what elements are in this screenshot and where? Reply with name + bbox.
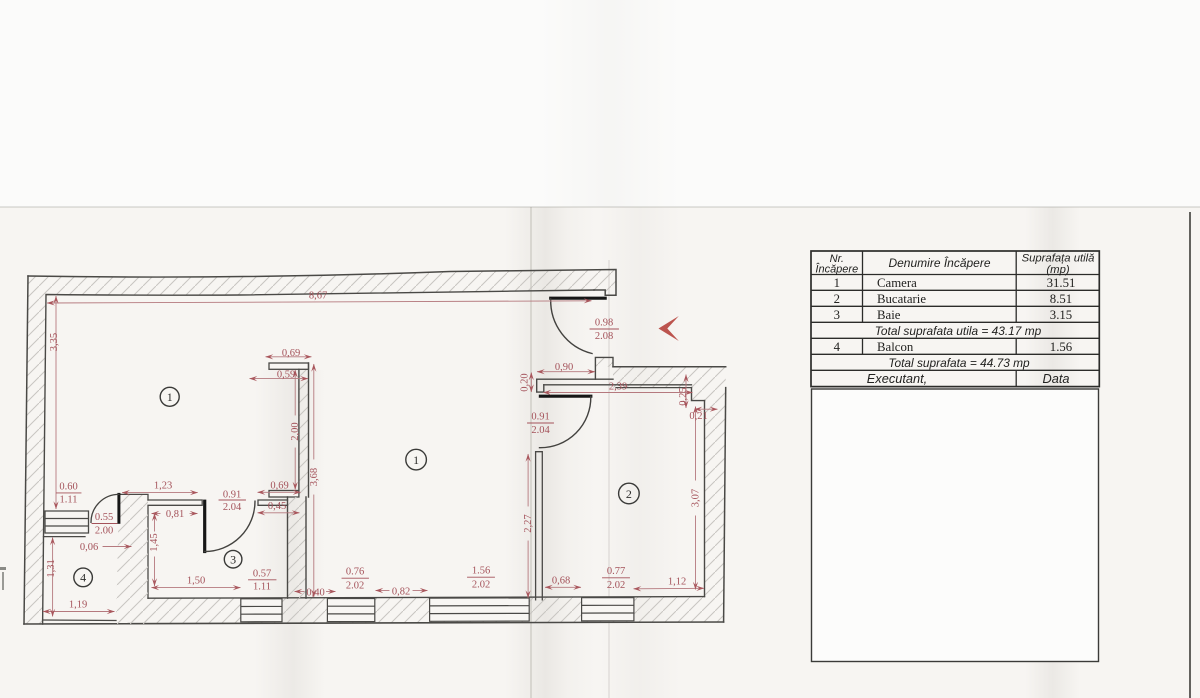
svg-text:0,45: 0,45: [268, 501, 286, 512]
svg-text:(mp): (mp): [1046, 264, 1069, 276]
svg-text:3: 3: [834, 308, 840, 322]
svg-text:4: 4: [834, 340, 841, 354]
svg-text:1.56: 1.56: [1050, 340, 1073, 354]
svg-text:0,21: 0,21: [689, 411, 707, 422]
svg-text:1: 1: [834, 276, 840, 290]
svg-text:1,50: 1,50: [187, 576, 205, 587]
svg-text:1.56: 1.56: [472, 566, 490, 577]
svg-text:1,45: 1,45: [149, 533, 160, 551]
svg-text:0,68: 0,68: [552, 576, 570, 587]
svg-text:3: 3: [230, 553, 236, 567]
svg-text:0,81: 0,81: [166, 509, 184, 520]
svg-text:Încăpere: Încăpere: [815, 263, 858, 276]
svg-text:Bucatarie: Bucatarie: [877, 292, 926, 306]
svg-text:0.76: 0.76: [346, 567, 364, 578]
svg-text:Data: Data: [1042, 371, 1069, 386]
svg-text:2.02: 2.02: [607, 580, 625, 591]
svg-text:Total suprafata utila = 43.17: Total suprafata utila = 43.17 mp: [875, 324, 1042, 338]
svg-text:2: 2: [626, 487, 632, 501]
svg-text:2.00: 2.00: [95, 526, 113, 537]
svg-text:3,07: 3,07: [691, 489, 702, 507]
svg-text:0,90: 0,90: [555, 362, 573, 373]
svg-text:2.02: 2.02: [472, 580, 490, 591]
svg-text:Camera: Camera: [877, 276, 917, 290]
svg-text:Suprafața utilă: Suprafața utilă: [1022, 253, 1095, 265]
svg-text:Baie: Baie: [877, 308, 901, 322]
svg-text:2,39: 2,39: [609, 382, 627, 393]
svg-text:0.57: 0.57: [253, 569, 271, 580]
svg-text:0.77: 0.77: [607, 566, 625, 577]
svg-text:2.04: 2.04: [531, 425, 550, 436]
svg-text:8,67: 8,67: [309, 291, 327, 302]
svg-text:2.04: 2.04: [223, 502, 242, 513]
svg-text:2.08: 2.08: [595, 331, 613, 342]
svg-text:1,19: 1,19: [69, 600, 87, 611]
svg-text:0,25: 0,25: [678, 387, 689, 405]
svg-text:1,31: 1,31: [46, 559, 57, 577]
svg-text:1,23: 1,23: [154, 481, 172, 492]
svg-text:1.11: 1.11: [253, 582, 271, 593]
svg-text:2.02: 2.02: [346, 581, 364, 592]
svg-text:0,06: 0,06: [80, 542, 98, 553]
svg-text:0,82: 0,82: [392, 587, 410, 598]
svg-text:2,00: 2,00: [290, 422, 301, 440]
svg-text:Balcon: Balcon: [877, 340, 914, 354]
svg-text:0,40: 0,40: [306, 588, 324, 599]
svg-text:Total suprafata = 44.73 mp: Total suprafata = 44.73 mp: [888, 356, 1030, 370]
svg-text:1: 1: [167, 390, 173, 404]
svg-text:Denumire Încăpere: Denumire Încăpere: [888, 255, 990, 270]
svg-text:0,69: 0,69: [282, 348, 300, 359]
svg-text:0,59: 0,59: [277, 370, 295, 381]
svg-text:2: 2: [834, 292, 840, 306]
svg-text:4: 4: [80, 571, 86, 585]
svg-text:0.60: 0.60: [59, 482, 77, 493]
svg-text:0.55: 0.55: [95, 512, 113, 523]
svg-text:0.98: 0.98: [595, 318, 613, 329]
svg-text:3,68: 3,68: [309, 468, 320, 486]
svg-text:3,35: 3,35: [49, 333, 60, 351]
svg-text:1,12: 1,12: [668, 577, 686, 588]
svg-text:0,69: 0,69: [270, 481, 288, 492]
svg-text:2,27: 2,27: [523, 514, 534, 532]
svg-text:31.51: 31.51: [1047, 276, 1076, 290]
svg-text:3.15: 3.15: [1050, 308, 1072, 322]
svg-text:1: 1: [413, 453, 419, 467]
svg-text:Executant,: Executant,: [867, 371, 927, 386]
svg-text:0.91: 0.91: [223, 490, 241, 501]
svg-text:8.51: 8.51: [1050, 292, 1072, 306]
svg-text:1.11: 1.11: [60, 495, 78, 506]
svg-text:0,20: 0,20: [520, 373, 531, 391]
svg-text:0.91: 0.91: [531, 412, 549, 423]
